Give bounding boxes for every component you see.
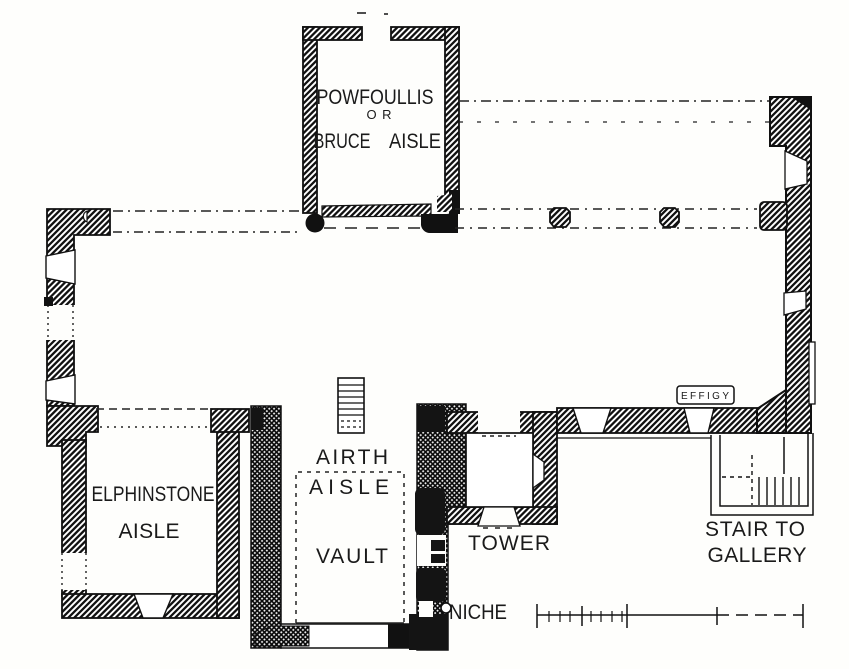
svg-text:STAIR TO: STAIR TO bbox=[705, 518, 805, 541]
svg-text:ELPHINSTONE: ELPHINSTONE bbox=[92, 483, 215, 506]
svg-text:AISLE: AISLE bbox=[119, 520, 180, 543]
svg-text:TOWER: TOWER bbox=[468, 532, 550, 555]
svg-text:NICHE: NICHE bbox=[449, 601, 507, 624]
svg-text:AISLE: AISLE bbox=[309, 476, 389, 499]
svg-text:VAULT: VAULT bbox=[316, 545, 388, 568]
svg-text:GALLERY: GALLERY bbox=[708, 544, 807, 567]
svg-text:BRUCE: BRUCE bbox=[314, 130, 371, 153]
svg-text:POWFOULLIS: POWFOULLIS bbox=[317, 86, 434, 109]
svg-text:AIRTH: AIRTH bbox=[316, 446, 388, 469]
svg-text:AISLE: AISLE bbox=[389, 130, 441, 153]
